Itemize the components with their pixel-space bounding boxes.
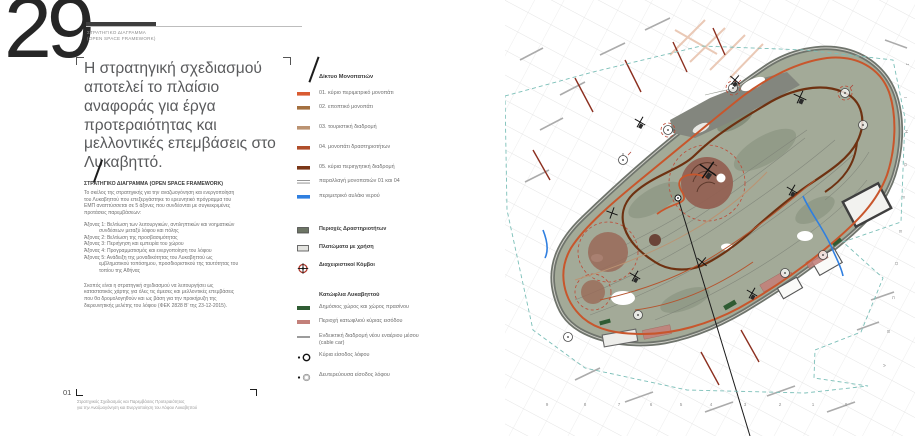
plateau-swatch-icon <box>297 244 312 254</box>
kicker-text: ΣΤΡΑΤΗΓΙΚΟ ΔΙΑΓΡΑΜΜΑ (OPEN SPACE FRAMEWO… <box>87 30 156 43</box>
kicker-rule <box>86 26 302 27</box>
legend-item: Περιοχές Δραστηριοτήτων <box>297 226 433 236</box>
legend-group-title: Δίκτυο Μονοπατιών <box>319 74 433 80</box>
lycabettus-map: J I H G F E D C B A 9 8 7 6 5 4 3 2 1 0 <box>505 0 915 436</box>
axis-item: Άξονας 5: Ανάδειξη της μοναδικότητας του… <box>84 255 242 275</box>
cable-car-line-icon <box>297 333 312 342</box>
svg-text:4: 4 <box>710 402 713 407</box>
svg-text:F: F <box>901 196 906 199</box>
legend-item: 04. μονοπάτι δραστηριοτήτων <box>297 144 433 153</box>
svg-text:J: J <box>905 63 910 65</box>
svg-text:3: 3 <box>744 402 747 407</box>
svg-text:2: 2 <box>779 402 782 407</box>
path-swatch-icon <box>297 164 312 173</box>
svg-text:E: E <box>898 230 903 233</box>
legend-item: 01. κύριο περιμετρικό μονοπάτι <box>297 90 433 99</box>
svg-text:G: G <box>903 163 908 167</box>
kicker-line2: (OPEN SPACE FRAMEWORK) <box>87 36 156 42</box>
body-text: Το σκέλος της στρατηγικής για την αναζωο… <box>84 190 242 314</box>
map-legend: Δίκτυο Μονοπατιών 01. κύριο περιμετρικό … <box>297 74 433 384</box>
activity-area-swatch-icon <box>297 226 312 236</box>
svg-text:6: 6 <box>650 402 653 407</box>
legend-item: Περιοχή κατωφλιού κύριας εισόδου <box>297 318 433 327</box>
path-swatch-icon <box>297 144 312 153</box>
water-swatch-icon <box>297 193 312 202</box>
main-entrance-icon <box>297 352 312 364</box>
legend-label: περιμετρικό αυλάκι νερού <box>319 193 433 200</box>
legend-label: Περιοχή κατωφλιού κύριας εισόδου <box>319 318 433 325</box>
body-outro: Σκοπός είναι η στρατηγική σχεδιασμού να … <box>84 283 242 310</box>
section-title: ΣΤΡΑΤΗΓΙΚΟ ΔΙΑΓΡΑΜΜΑ (OPEN SPACE FRAMEWO… <box>84 181 223 187</box>
legend-label: 01. κύριο περιμετρικό μονοπάτι <box>319 90 433 97</box>
legend-item: Δημόσιος χώρος και χώρος πρασίνου <box>297 304 433 313</box>
legend-label: Κύρια είσοδος λόφου <box>319 352 433 359</box>
body-intro: Το σκέλος της στρατηγικής για την αναζωο… <box>84 190 242 217</box>
legend-item: 03. τουριστική διαδρομή <box>297 124 433 133</box>
legend-item: Ενδεικτική διαδρομή νέου εναέριου μέσου … <box>297 333 433 347</box>
footer-line2: για την Αναζωογόνηση και Ενεργοποίηση το… <box>77 405 197 411</box>
page-headline: Η στρατηγική σχεδιασμού αποτελεί το πλαί… <box>84 60 286 173</box>
legend-label: Πλατώματα με χρήση <box>319 244 433 251</box>
secondary-entrance-icon <box>297 372 312 384</box>
path-swatch-icon <box>297 90 312 99</box>
legend-group-title: Κατώφλια Λυκαβηττού <box>319 292 433 298</box>
legend-label: Δευτερεύουσα είσοδος λόφου <box>319 372 433 379</box>
svg-text:0: 0 <box>845 402 848 407</box>
document-page: 29 ΣΤΡΑΤΗΓΙΚΟ ΔΙΑΓΡΑΜΜΑ (OPEN SPACE FRAM… <box>0 0 915 436</box>
legend-item: Πλατώματα με χρήση <box>297 244 433 254</box>
green-space-swatch-icon <box>297 304 312 313</box>
legend-label: Περιοχές Δραστηριοτήτων <box>319 226 433 233</box>
legend-label: Ενδεικτική διαδρομή νέου εναέριου μέσου … <box>319 333 433 347</box>
path-swatch-icon <box>297 124 312 133</box>
entrance-threshold-swatch-icon <box>297 318 312 327</box>
svg-text:1: 1 <box>812 402 815 407</box>
footer-number: 01 <box>63 388 71 397</box>
legend-item: περιμετρικό αυλάκι νερού <box>297 193 433 202</box>
axes-list: Άξονας 1: Βελτίωση των λειτουργικών, αντ… <box>84 222 242 275</box>
svg-text:B: B <box>886 330 891 333</box>
svg-text:5: 5 <box>680 402 683 407</box>
legend-label: Δημόσιος χώρος και χώρος πρασίνου <box>319 304 433 311</box>
axis-item: Άξονας 1: Βελτίωση των λειτουργικών, αντ… <box>84 222 242 235</box>
footer-caption: Στρατηγικός Σχεδιασμός και Παρεμβάσεις Π… <box>77 399 197 411</box>
axis-item: Άξονας 4: Προγραμματισμός και ενεργοποίη… <box>84 248 242 255</box>
theatre-dot <box>717 174 726 183</box>
svg-text:H: H <box>904 130 909 133</box>
corner-bracket-icon <box>76 57 84 65</box>
legend-item: 05. κύρια περιηγητική διαδρομή <box>297 164 433 173</box>
svg-text:I: I <box>903 97 908 98</box>
legend-item: Κύρια είσοδος λόφου <box>297 352 433 364</box>
footer-bracket-icon <box>250 389 257 396</box>
management-node-icon <box>297 262 312 276</box>
legend-label: παραλλαγή μονοπατιών 01 και 04 <box>319 178 433 185</box>
legend-label: Διαχειριστικοί Κόμβοι <box>319 262 433 269</box>
legend-item: Διαχειριστικοί Κόμβοι <box>297 262 433 276</box>
legend-item: 02. εποπτικό μονοπάτι <box>297 104 433 113</box>
legend-label: 05. κύρια περιηγητική διαδρομή <box>319 164 433 171</box>
path-swatch-icon <box>297 104 312 113</box>
variant-path-icon <box>297 178 312 187</box>
legend-label: 02. εποπτικό μονοπάτι <box>319 104 433 111</box>
svg-text:8: 8 <box>584 402 587 407</box>
svg-text:9: 9 <box>546 402 549 407</box>
footer-bracket-icon <box>76 389 83 396</box>
legend-label: 04. μονοπάτι δραστηριοτήτων <box>319 144 433 151</box>
legend-item: παραλλαγή μονοπατιών 01 και 04 <box>297 178 433 187</box>
svg-text:7: 7 <box>618 402 621 407</box>
legend-item: Δευτερεύουσα είσοδος λόφου <box>297 372 433 384</box>
legend-label: 03. τουριστική διαδρομή <box>319 124 433 131</box>
